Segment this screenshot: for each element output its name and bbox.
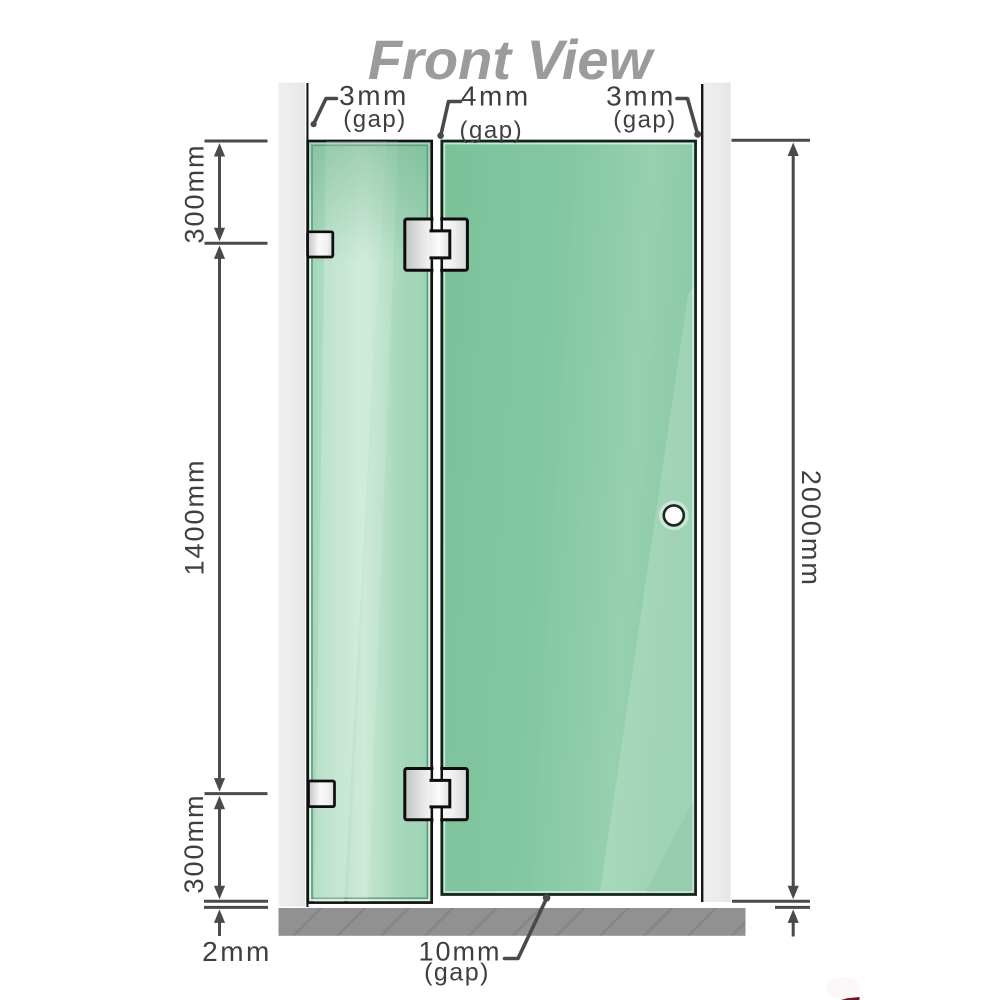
svg-text:(gap): (gap): [343, 106, 407, 133]
svg-text:1400mm: 1400mm: [180, 458, 210, 575]
svg-text:(gap): (gap): [460, 117, 524, 144]
svg-text:300mm: 300mm: [179, 793, 209, 893]
svg-text:4mm: 4mm: [461, 80, 531, 111]
svg-text:300mm: 300mm: [180, 143, 210, 243]
svg-text:(gap): (gap): [424, 959, 490, 987]
svg-text:2000mm: 2000mm: [796, 470, 826, 587]
svg-text:2mm: 2mm: [202, 936, 272, 967]
svg-text:(gap): (gap): [613, 107, 677, 134]
